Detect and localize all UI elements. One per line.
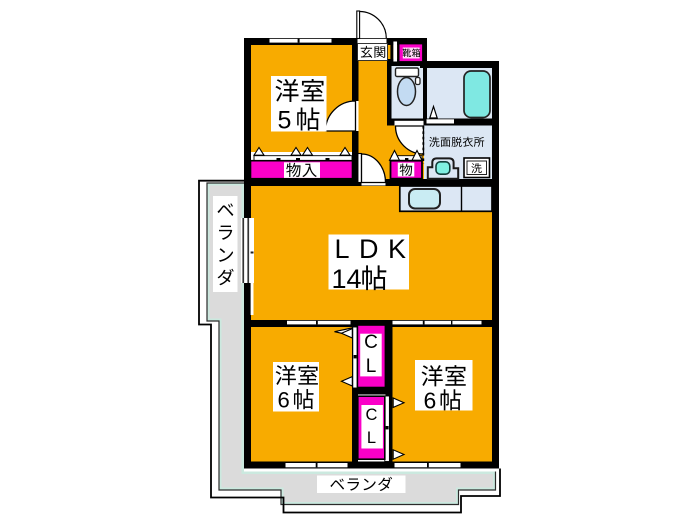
svg-text:LDK: LDK: [335, 234, 416, 264]
svg-text:6: 6: [424, 388, 437, 414]
svg-text:5: 5: [278, 107, 292, 135]
svg-text:C: C: [366, 406, 378, 424]
svg-text:L: L: [366, 356, 377, 377]
svg-text:C: C: [364, 332, 378, 353]
svg-text:L: L: [367, 429, 376, 447]
svg-text:6: 6: [278, 388, 290, 413]
svg-text:14: 14: [332, 264, 362, 294]
